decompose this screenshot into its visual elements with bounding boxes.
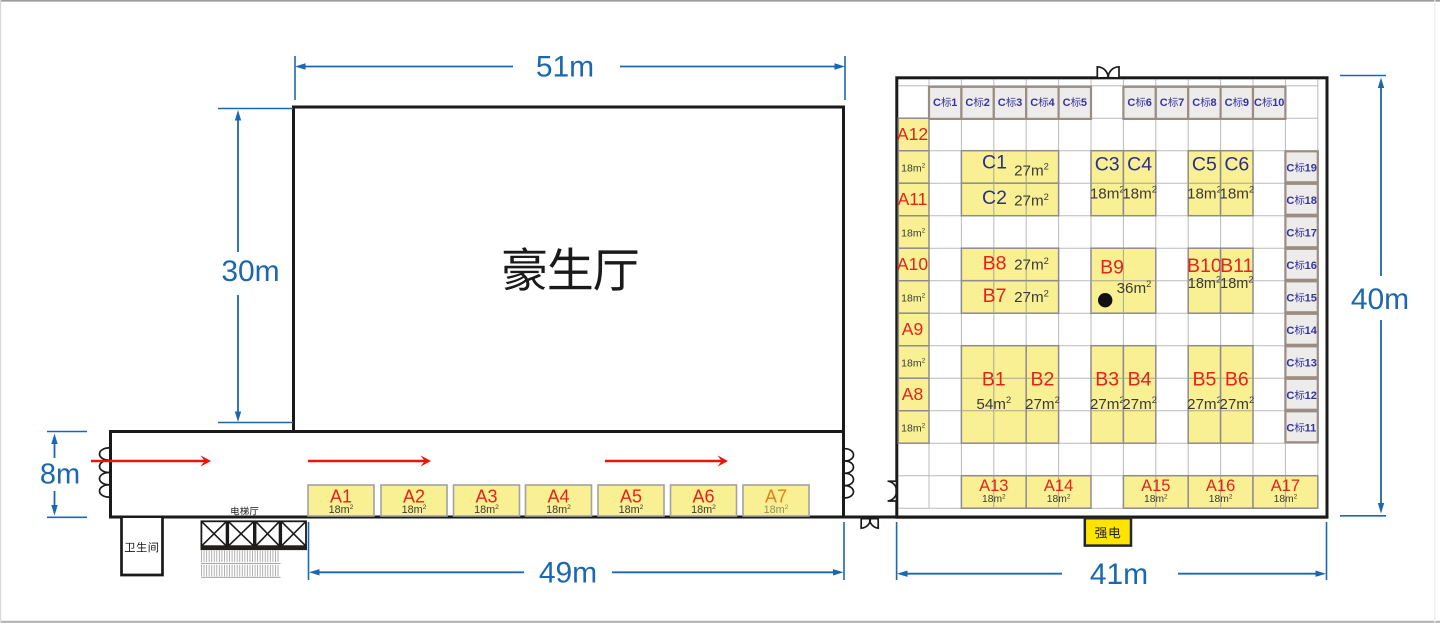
svg-text:B3: B3 xyxy=(1095,369,1119,391)
svg-text:1: 1 xyxy=(951,97,957,109)
svg-text:51m: 51m xyxy=(536,51,594,84)
svg-text:C3: C3 xyxy=(1095,154,1120,176)
svg-text:C4: C4 xyxy=(1127,154,1152,176)
svg-text:18m2: 18m2 xyxy=(1090,184,1125,203)
svg-text:C1: C1 xyxy=(982,152,1007,174)
svg-text:17: 17 xyxy=(1305,227,1317,239)
svg-text:40m: 40m xyxy=(1351,283,1409,316)
svg-text:6: 6 xyxy=(1146,97,1152,109)
svg-text:B4: B4 xyxy=(1128,369,1152,391)
svg-text:C: C xyxy=(1286,325,1294,337)
svg-text:C6: C6 xyxy=(1224,154,1249,176)
svg-text:27m2: 27m2 xyxy=(1014,191,1049,210)
svg-text:C: C xyxy=(1225,97,1233,109)
svg-text:4: 4 xyxy=(1049,97,1056,109)
svg-text:C: C xyxy=(1160,97,1168,109)
svg-text:B10: B10 xyxy=(1187,255,1222,277)
svg-text:C: C xyxy=(1286,162,1294,174)
svg-text:B5: B5 xyxy=(1192,369,1216,391)
svg-text:A9: A9 xyxy=(902,319,923,339)
svg-text:27m2: 27m2 xyxy=(1014,161,1049,180)
svg-text:30m: 30m xyxy=(221,255,279,288)
svg-text:18: 18 xyxy=(1305,195,1317,207)
svg-text:C: C xyxy=(933,97,941,109)
svg-text:16: 16 xyxy=(1305,260,1317,272)
svg-text:41m: 41m xyxy=(1090,558,1148,591)
svg-text:A11: A11 xyxy=(898,189,928,209)
svg-text:B9: B9 xyxy=(1100,257,1124,279)
svg-text:27m2: 27m2 xyxy=(1025,394,1060,413)
svg-text:C: C xyxy=(1286,422,1294,434)
svg-text:27m2: 27m2 xyxy=(1090,394,1125,413)
svg-text:9: 9 xyxy=(1243,97,1249,109)
svg-text:C: C xyxy=(1127,97,1135,109)
svg-text:13: 13 xyxy=(1305,357,1317,369)
svg-text:C: C xyxy=(1030,97,1038,109)
svg-text:A15: A15 xyxy=(1141,477,1170,495)
svg-text:27m2: 27m2 xyxy=(1187,394,1222,413)
svg-text:12: 12 xyxy=(1305,390,1317,402)
svg-text:36m2: 36m2 xyxy=(1117,278,1152,297)
svg-text:B8: B8 xyxy=(983,253,1007,275)
svg-text:C: C xyxy=(1286,357,1294,369)
svg-text:B6: B6 xyxy=(1225,369,1249,391)
svg-text:C: C xyxy=(1286,227,1294,239)
svg-text:B11: B11 xyxy=(1220,255,1253,277)
svg-text:3: 3 xyxy=(1016,97,1022,109)
svg-text:A12: A12 xyxy=(897,124,928,144)
svg-text:7: 7 xyxy=(1178,97,1184,109)
svg-text:49m: 49m xyxy=(539,557,597,590)
svg-text:C: C xyxy=(1286,260,1294,272)
svg-text:B2: B2 xyxy=(1030,369,1054,391)
svg-text:C: C xyxy=(1286,292,1294,304)
svg-text:C: C xyxy=(1192,97,1200,109)
svg-text:A14: A14 xyxy=(1044,477,1073,495)
svg-text:C: C xyxy=(1254,97,1262,109)
svg-text:C: C xyxy=(965,97,973,109)
svg-text:C: C xyxy=(1286,390,1294,402)
svg-text:10: 10 xyxy=(1272,97,1284,109)
svg-text:8m: 8m xyxy=(40,459,80,491)
svg-text:27m2: 27m2 xyxy=(1014,287,1049,306)
svg-text:27m2: 27m2 xyxy=(1014,255,1049,274)
svg-text:15: 15 xyxy=(1305,292,1317,304)
svg-text:27m2: 27m2 xyxy=(1219,394,1254,413)
svg-text:18m2: 18m2 xyxy=(1219,184,1254,203)
svg-text:A16: A16 xyxy=(1206,477,1235,495)
svg-text:11: 11 xyxy=(1305,422,1317,434)
svg-text:8: 8 xyxy=(1211,97,1217,109)
svg-text:C: C xyxy=(1286,195,1294,207)
svg-text:A13: A13 xyxy=(979,477,1008,495)
svg-text:2: 2 xyxy=(984,97,990,109)
svg-text:54m2: 54m2 xyxy=(976,394,1011,413)
svg-text:18m2: 18m2 xyxy=(1187,184,1222,203)
svg-text:A10: A10 xyxy=(897,254,928,274)
svg-text:C2: C2 xyxy=(982,187,1007,209)
svg-text:C: C xyxy=(1063,97,1071,109)
svg-text:C5: C5 xyxy=(1192,154,1217,176)
svg-text:A17: A17 xyxy=(1271,477,1300,495)
svg-text:19: 19 xyxy=(1305,162,1317,174)
svg-text:5: 5 xyxy=(1081,97,1087,109)
svg-text:14: 14 xyxy=(1305,325,1318,337)
svg-text:B7: B7 xyxy=(983,285,1007,307)
svg-text:C: C xyxy=(998,97,1006,109)
svg-text:A8: A8 xyxy=(902,384,923,404)
svg-text:B1: B1 xyxy=(982,369,1006,391)
